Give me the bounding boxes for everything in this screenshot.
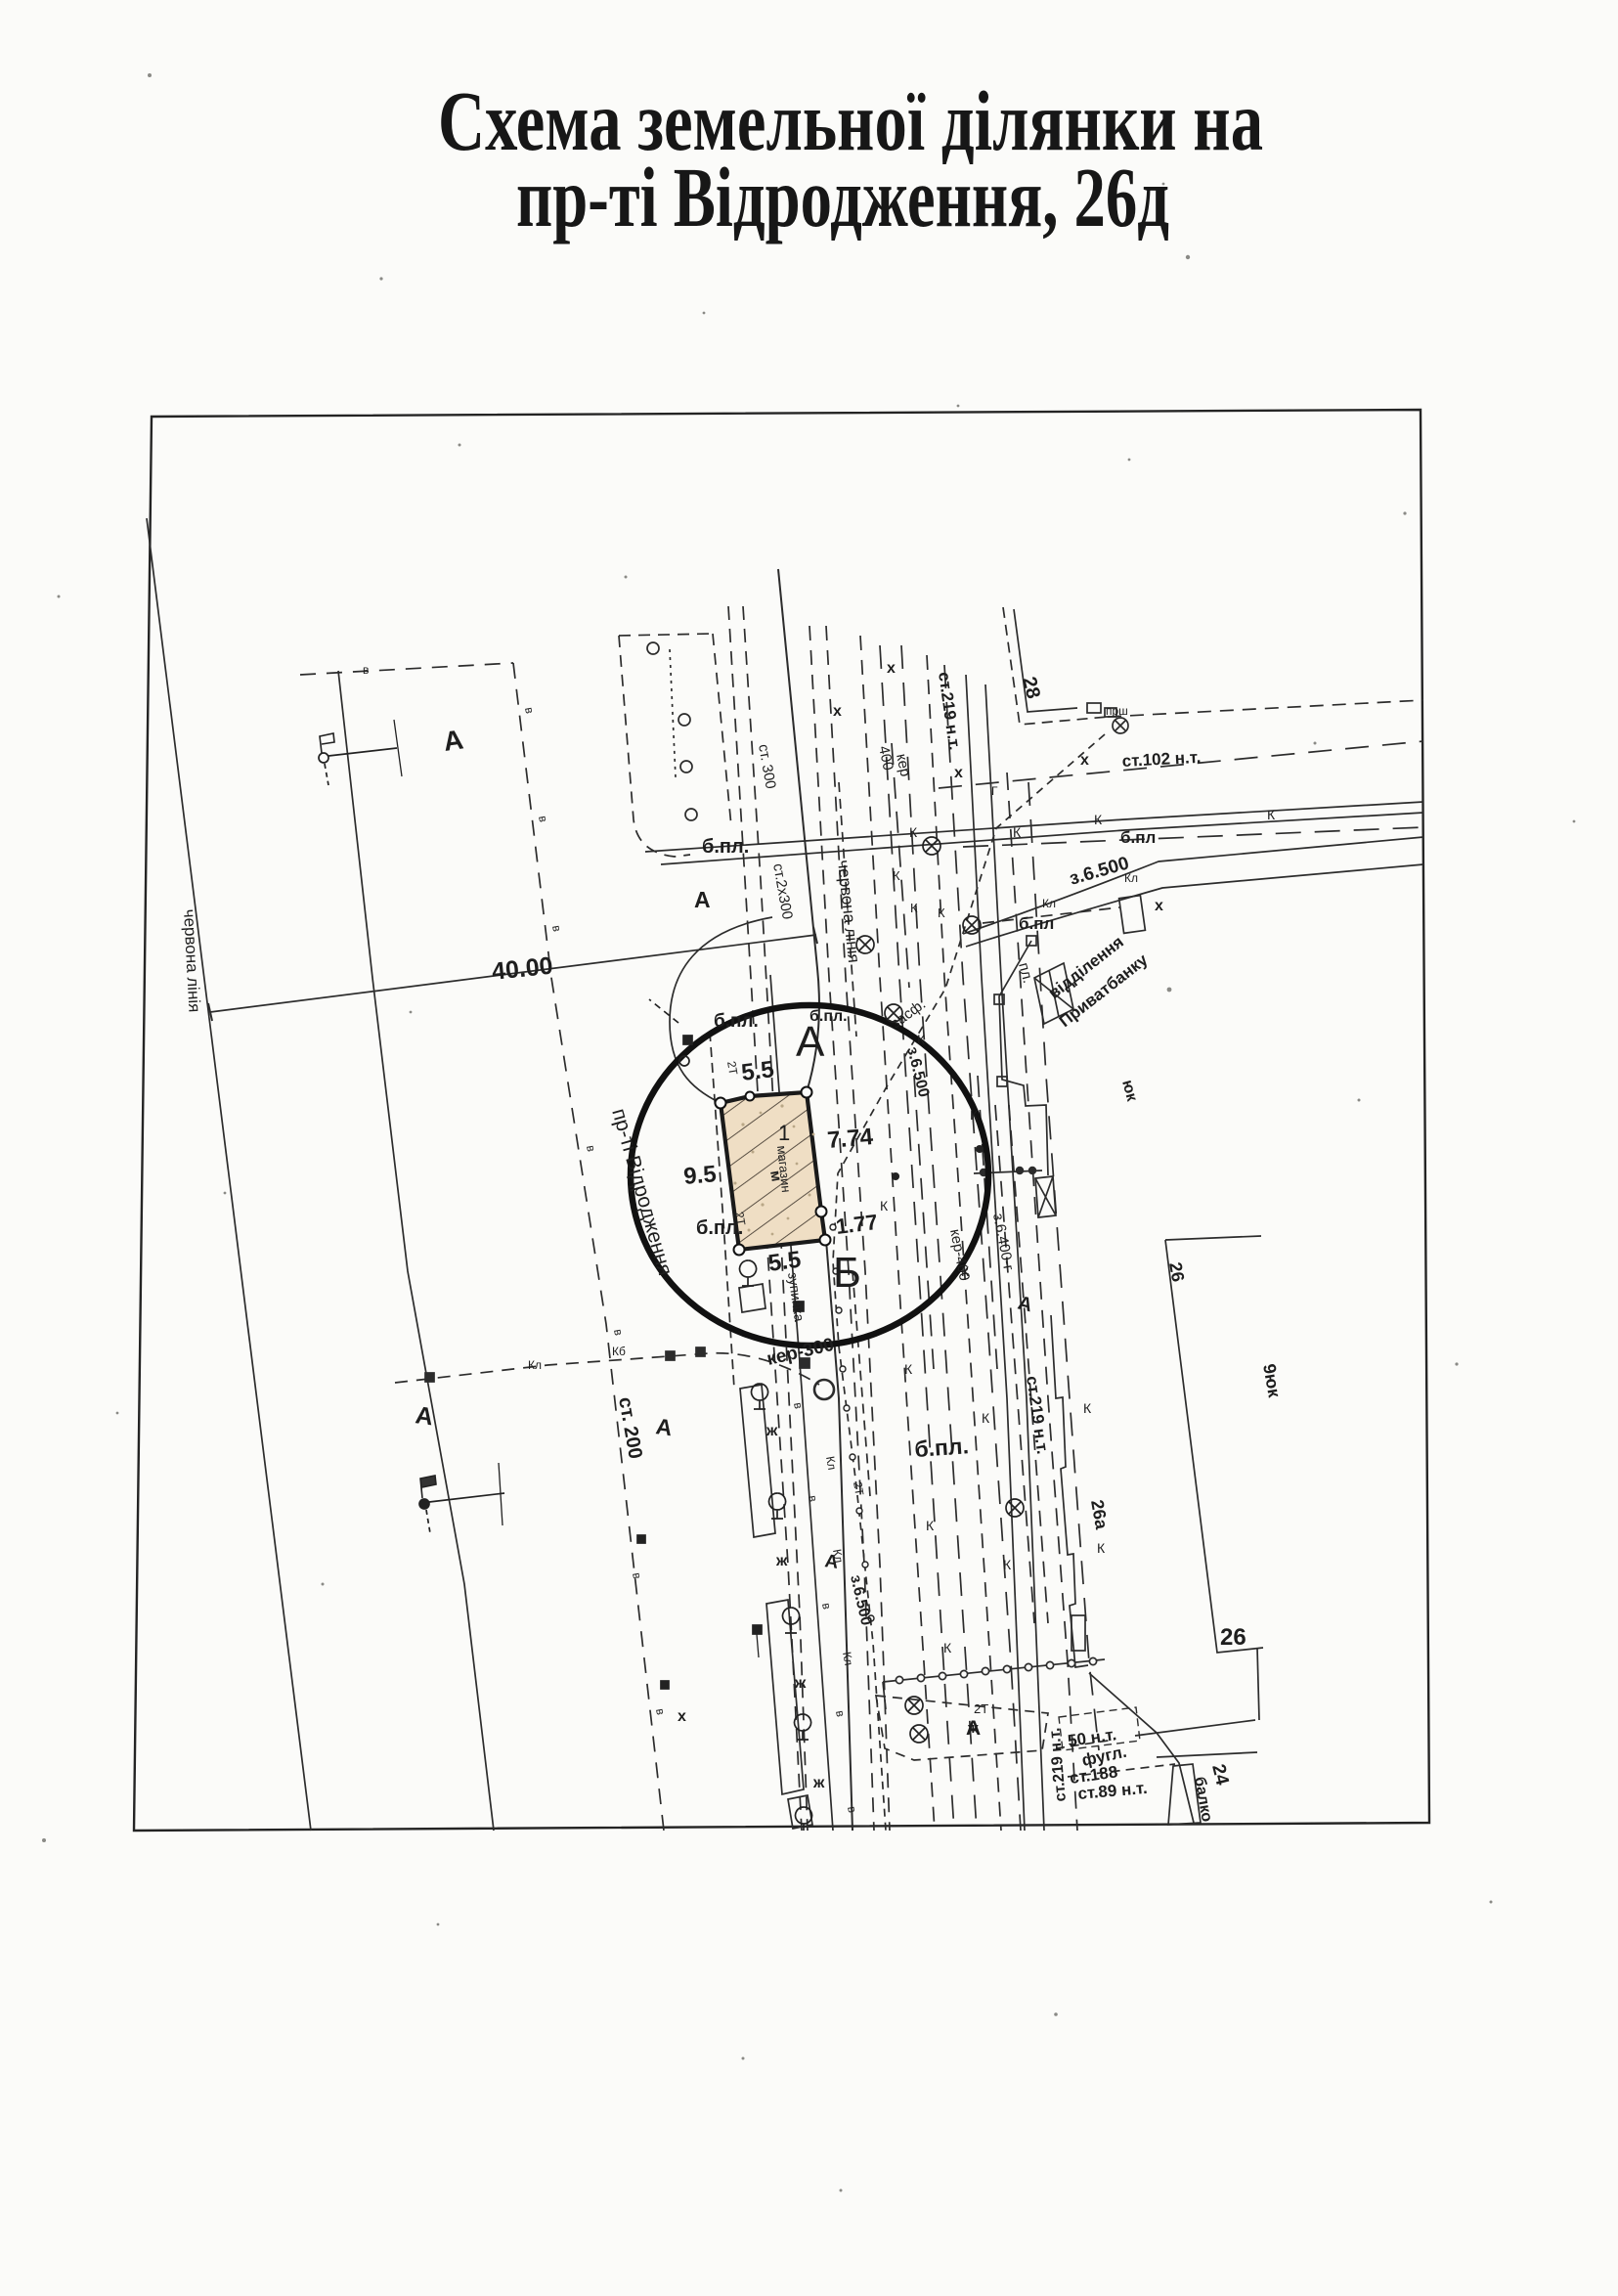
svg-text:червона лінія: червона лінія — [180, 908, 204, 1013]
svg-text:х: х — [833, 703, 842, 720]
svg-text:х: х — [954, 765, 963, 781]
svg-text:в: в — [630, 1571, 644, 1580]
svg-text:К: К — [943, 1640, 952, 1656]
svg-text:з.6.500: з.6.500 — [903, 1045, 932, 1099]
svg-text:в: в — [536, 815, 550, 823]
svg-text:з.6.400-г: з.6.400-г — [989, 1213, 1017, 1273]
svg-text:ж: ж — [812, 1775, 825, 1791]
svg-text:в: в — [833, 1709, 848, 1718]
svg-text:в: в — [522, 706, 537, 715]
svg-text:б.пл: б.пл — [1019, 914, 1054, 933]
svg-text:юк: юк — [1118, 1079, 1140, 1104]
svg-text:ж: ж — [775, 1553, 788, 1569]
svg-text:б.пл.: б.пл. — [809, 1008, 848, 1025]
svg-text:кер: кер — [893, 752, 913, 777]
svg-text:7.74: 7.74 — [826, 1124, 875, 1154]
svg-text:К: К — [1267, 807, 1276, 822]
svg-text:в: в — [584, 1144, 598, 1153]
svg-text:26а: 26а — [1087, 1498, 1112, 1531]
svg-text:К: К — [938, 905, 945, 920]
svg-text:А: А — [694, 887, 711, 912]
svg-text:ст. 300: ст. 300 — [755, 743, 779, 790]
svg-text:Кл: Кл — [528, 1358, 542, 1372]
svg-text:б.пл.: б.пл. — [714, 1011, 759, 1032]
svg-text:Г: Г — [991, 784, 998, 798]
svg-text:б.пл: б.пл — [1120, 828, 1156, 847]
svg-text:К: К — [1013, 824, 1022, 840]
svg-text:К: К — [970, 1107, 979, 1123]
svg-text:в: в — [363, 663, 369, 677]
svg-text:40.00: 40.00 — [491, 952, 554, 986]
svg-text:26: 26 — [1220, 1624, 1246, 1651]
svg-text:Кл: Кл — [830, 1548, 846, 1564]
svg-text:червона лінія: червона лінія — [834, 859, 863, 963]
svg-text:ст.219 н.т.: ст.219 н.т. — [935, 671, 964, 752]
svg-text:2Т: 2Т — [724, 1060, 740, 1077]
svg-text:х: х — [1155, 898, 1163, 914]
svg-text:К: К — [1003, 1557, 1012, 1572]
svg-text:К: К — [893, 868, 900, 883]
svg-text:5.5: 5.5 — [740, 1056, 775, 1086]
svg-text:К: К — [926, 1518, 935, 1533]
svg-text:ст.102 н.т.: ст.102 н.т. — [1121, 748, 1202, 771]
svg-text:А: А — [654, 1413, 674, 1440]
svg-text:2Т: 2Т — [851, 1480, 866, 1497]
svg-text:2Т: 2Т — [974, 1701, 988, 1716]
svg-text:ст.219 н.т.: ст.219 н.т. — [1046, 1727, 1070, 1802]
svg-text:в: в — [611, 1328, 626, 1337]
svg-text:Кл: Кл — [823, 1455, 839, 1471]
svg-text:ж: ж — [967, 1720, 979, 1737]
svg-text:9юк: 9юк — [1259, 1362, 1285, 1399]
svg-text:ж: ж — [794, 1675, 807, 1692]
svg-text:в: в — [806, 1494, 820, 1503]
svg-text:прш: прш — [1106, 704, 1128, 718]
svg-text:ж: ж — [765, 1423, 778, 1439]
svg-text:К: К — [1094, 812, 1103, 827]
svg-text:х: х — [678, 1708, 686, 1725]
svg-text:х: х — [1080, 752, 1089, 769]
svg-text:в: в — [549, 924, 564, 933]
svg-text:К: К — [880, 1198, 889, 1214]
svg-text:К: К — [909, 824, 918, 840]
svg-text:б.пл.: б.пл. — [702, 836, 749, 858]
svg-text:б.пл.: б.пл. — [914, 1433, 970, 1462]
svg-text:9.5: 9.5 — [682, 1161, 718, 1190]
svg-text:в: в — [845, 1805, 859, 1814]
svg-text:пр-ті Відродження: пр-ті Відродження — [607, 1106, 677, 1278]
svg-text:в: в — [653, 1707, 668, 1716]
svg-text:А: А — [1016, 1293, 1034, 1317]
svg-text:Кл: Кл — [840, 1651, 855, 1666]
svg-text:ст. 200: ст. 200 — [614, 1395, 646, 1461]
svg-text:1.77: 1.77 — [835, 1210, 880, 1239]
svg-text:К: К — [1083, 1400, 1092, 1416]
svg-text:К: К — [961, 1263, 970, 1279]
svg-text:Б: Б — [833, 1249, 861, 1297]
svg-text:з.6.500: з.6.500 — [847, 1573, 874, 1627]
svg-text:Кл: Кл — [1124, 871, 1138, 885]
svg-text:зупинка: зупинка — [785, 1271, 808, 1323]
svg-text:х: х — [887, 660, 896, 677]
svg-text:А: А — [442, 724, 465, 757]
svg-text:К: К — [904, 1361, 913, 1377]
svg-text:в: в — [819, 1602, 834, 1611]
svg-text:А: А — [796, 1018, 825, 1066]
svg-text:пл.: пл. — [1015, 961, 1036, 986]
svg-text:К: К — [982, 1410, 990, 1426]
svg-text:28: 28 — [1018, 675, 1044, 701]
svg-text:Кл: Кл — [1042, 897, 1056, 910]
svg-text:К: К — [910, 901, 918, 915]
svg-text:24: 24 — [1207, 1762, 1233, 1788]
svg-text:1: 1 — [778, 1121, 790, 1145]
svg-text:К: К — [1097, 1540, 1106, 1556]
svg-text:пр-ті Відродження, 26д: пр-ті Відродження, 26д — [516, 150, 1169, 244]
svg-text:ст.2х300: ст.2х300 — [769, 862, 796, 921]
svg-text:26: 26 — [1165, 1260, 1188, 1283]
svg-text:А: А — [414, 1401, 435, 1431]
svg-text:Кб: Кб — [612, 1345, 626, 1358]
